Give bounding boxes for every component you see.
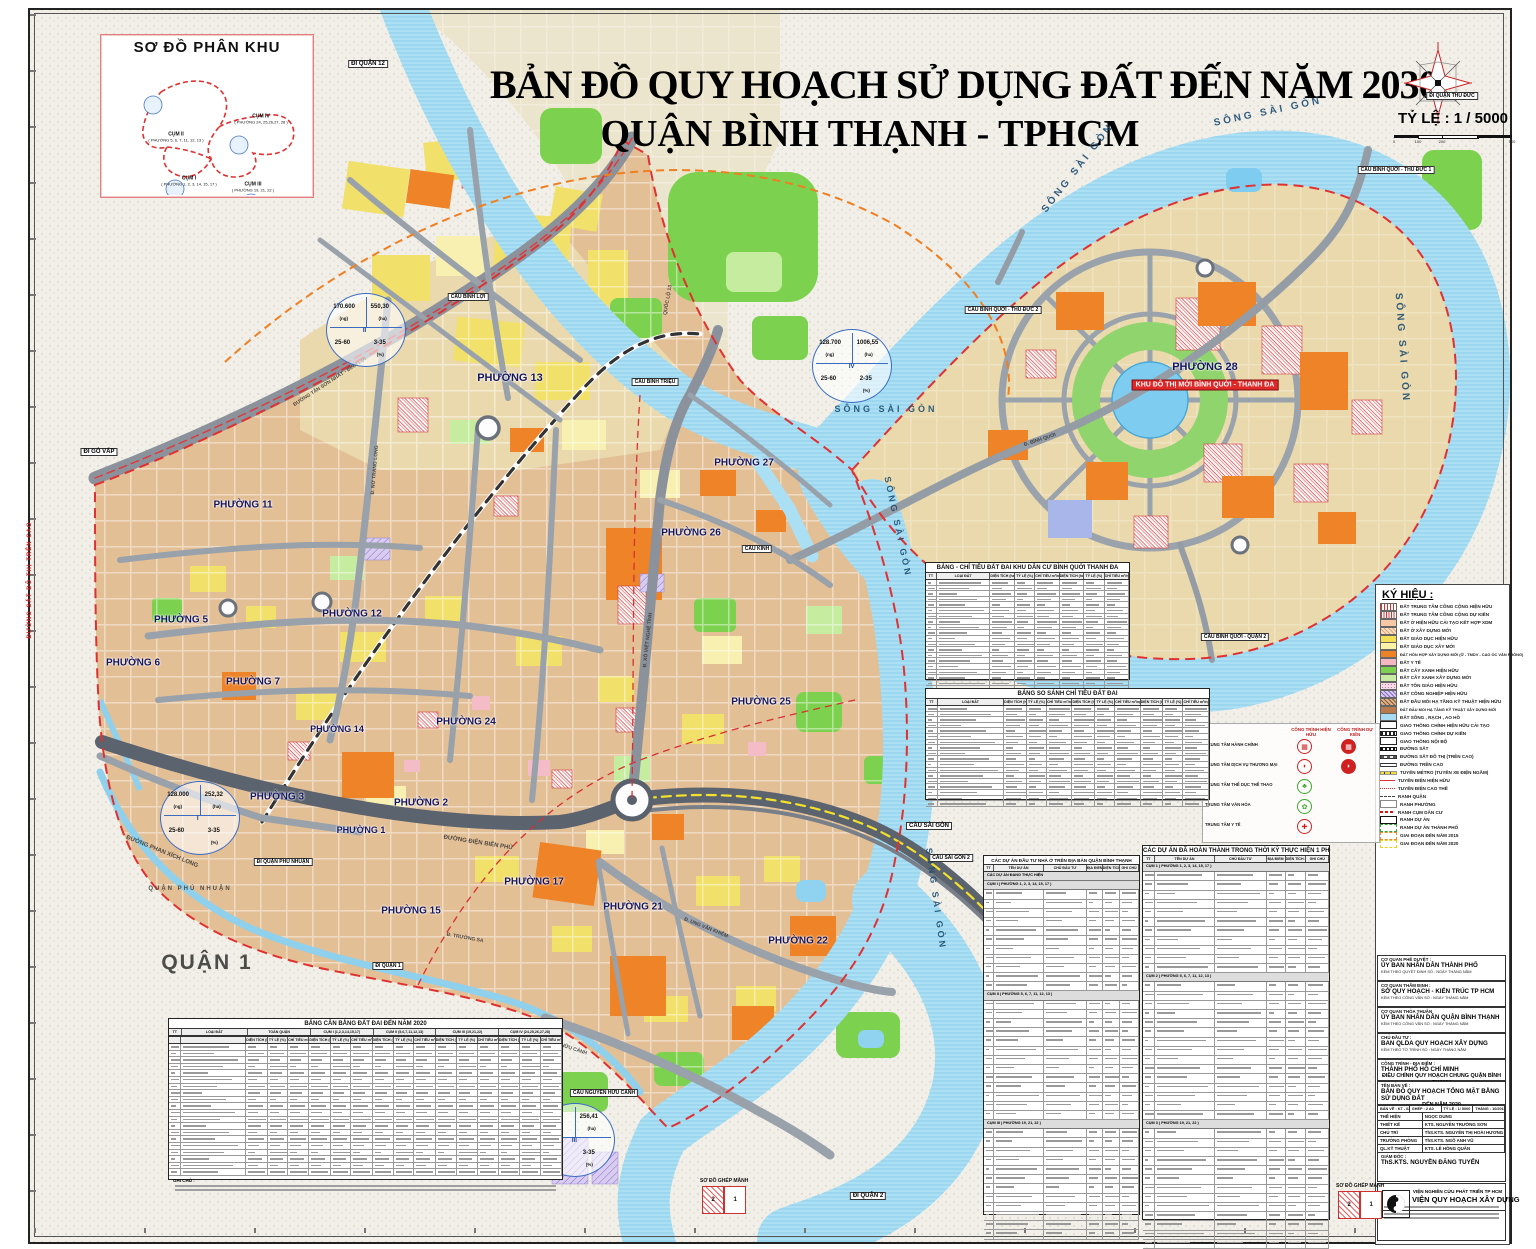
table-cell bbox=[457, 1090, 478, 1096]
table-cell bbox=[1044, 1047, 1087, 1055]
table-cell bbox=[938, 762, 1004, 767]
ward-label: PHƯỜNG 3 bbox=[250, 792, 304, 803]
table-cell bbox=[436, 1057, 457, 1063]
table-cell bbox=[1155, 1148, 1215, 1156]
table-cell bbox=[984, 1148, 994, 1156]
table-cell bbox=[1141, 712, 1164, 717]
table-cell bbox=[1286, 1166, 1307, 1174]
table-cell bbox=[1267, 1221, 1286, 1229]
table-header: TTTÊN DỰ ÁNCHỦ ĐẦU TƯĐỊA ĐIỂMDIỆN TÍCH (… bbox=[1143, 855, 1329, 863]
table-cell bbox=[478, 1057, 499, 1063]
table-header-cell: CHỈ TIÊU m²/người bbox=[1115, 699, 1140, 705]
table-cell bbox=[309, 1110, 330, 1116]
table-cell bbox=[394, 1143, 415, 1149]
table-row bbox=[984, 1083, 1139, 1092]
cluster-floors: 25-60 bbox=[335, 340, 350, 346]
cluster-area: 256,41 bbox=[580, 1114, 598, 1120]
approval-name: SỞ QUY HOẠCH - KIẾN TRÚC TP HCM bbox=[1381, 988, 1502, 995]
table-cell bbox=[1087, 1129, 1103, 1137]
table-cell bbox=[1087, 890, 1103, 898]
table-cell bbox=[1084, 647, 1105, 652]
table-cell bbox=[1087, 1047, 1103, 1055]
legend-swatch-icon bbox=[1380, 788, 1395, 789]
table-cell bbox=[984, 1056, 994, 1064]
table-cell bbox=[1103, 1184, 1120, 1192]
table-cell bbox=[288, 1136, 309, 1142]
table-cell bbox=[1267, 872, 1286, 880]
table-cell bbox=[1095, 762, 1115, 767]
table-cell bbox=[926, 745, 938, 750]
table-cell bbox=[984, 982, 994, 990]
table-cell bbox=[268, 1084, 289, 1090]
table-header-cell: CHỈ TIÊU m²/ng bbox=[541, 1037, 562, 1043]
bridge-label: ĐI QUẬN THỦ ĐỨC bbox=[1426, 92, 1478, 100]
table-cell bbox=[926, 681, 937, 686]
table-cell bbox=[990, 647, 1014, 652]
table-cell bbox=[1267, 1231, 1286, 1239]
table-cell bbox=[331, 1103, 352, 1109]
table-cell bbox=[1267, 1084, 1286, 1092]
table-row bbox=[1143, 937, 1329, 946]
table-cell bbox=[268, 1097, 289, 1103]
table-cell bbox=[331, 1064, 352, 1070]
table-cell bbox=[394, 1097, 415, 1103]
table-cell bbox=[1103, 1102, 1120, 1110]
table-cell bbox=[331, 1136, 352, 1142]
table-cell bbox=[351, 1097, 372, 1103]
cluster-index: III bbox=[572, 1138, 577, 1144]
table-cell bbox=[990, 614, 1014, 619]
legend-item-label: GIAO THÔNG NỘI BỘ bbox=[1400, 739, 1447, 744]
table-cell bbox=[1035, 670, 1059, 675]
table-group-cell: TOÀN QUẬN bbox=[248, 1029, 311, 1035]
table-cell bbox=[436, 1143, 457, 1149]
table-cell bbox=[1047, 723, 1072, 728]
table-cell bbox=[1115, 801, 1140, 806]
table-section-row: CÁC DỰ ÁN ĐANG THỰC HIỆN bbox=[984, 872, 1139, 881]
legend-swatch-icon bbox=[1380, 747, 1397, 751]
table-header-cell: DIỆN TÍCH (ha) bbox=[373, 1037, 394, 1043]
table-cell bbox=[1015, 681, 1036, 686]
works-existing-icon: ▦ bbox=[1297, 739, 1312, 754]
legend-swatch-icon bbox=[1380, 658, 1397, 666]
table-section-row: CỤM III ( PHƯỜNG 19, 21, 22 ) bbox=[984, 1120, 1139, 1129]
cluster-pop-unit: (ng) bbox=[825, 352, 834, 357]
table-row bbox=[984, 909, 1139, 918]
works-row: TRUNG TÂM DỊCH VỤ THƯƠNG MẠI◗◗ bbox=[1205, 758, 1377, 774]
table-cell bbox=[1267, 964, 1286, 972]
table-cell bbox=[1163, 706, 1183, 711]
table-header-cell: CHỈ TIÊU m²/người bbox=[1047, 699, 1072, 705]
table-cell bbox=[1286, 927, 1307, 935]
table-cell bbox=[1155, 1038, 1215, 1046]
table-cell bbox=[1103, 1175, 1120, 1183]
table-cell bbox=[541, 1130, 562, 1136]
table-cell bbox=[1060, 602, 1084, 607]
table-cell bbox=[1027, 790, 1047, 795]
legend-item: TUYẾN MÉTRO (TUYẾN XE ĐIỆN NGẦM) bbox=[1380, 769, 1509, 777]
table-cell bbox=[1087, 1037, 1103, 1045]
table-cell bbox=[1120, 909, 1139, 917]
road-label: ĐƯỜNG ĐIỆN BIÊN PHỦ bbox=[443, 835, 513, 852]
table-header-cell: DIỆN TÍCH (ha) bbox=[309, 1037, 330, 1043]
table-cell bbox=[1143, 1019, 1155, 1027]
table-row bbox=[1143, 1019, 1329, 1028]
table-row bbox=[984, 946, 1139, 955]
drawing-info-value: KTS. LÊ HỒNG QUÂN bbox=[1423, 1145, 1505, 1152]
table-cell bbox=[331, 1143, 352, 1149]
table-cell bbox=[1004, 784, 1027, 789]
table-cell bbox=[520, 1064, 541, 1070]
table-cell bbox=[1306, 881, 1329, 889]
table-cell bbox=[1015, 608, 1036, 613]
table-body bbox=[926, 706, 1209, 807]
table-cell bbox=[1115, 706, 1140, 711]
table-title: BẢNG - CHỈ TIÊU ĐẤT ĐAI KHU DÂN CƯ BÌNH … bbox=[926, 563, 1129, 572]
table-cell bbox=[1306, 1148, 1329, 1156]
table-cell bbox=[520, 1143, 541, 1149]
legend-item-label: RANH DỰ ÁN bbox=[1400, 817, 1430, 822]
data-table: BẢNG SO SÁNH CHỈ TIÊU ĐẤT ĐAITTLOẠI ĐẤTD… bbox=[925, 688, 1210, 800]
table-cell bbox=[990, 658, 1014, 663]
table-row bbox=[984, 1212, 1139, 1221]
table-cell bbox=[1215, 1065, 1266, 1073]
table-cell bbox=[1183, 790, 1208, 795]
table-cell bbox=[1084, 597, 1105, 602]
works-row: TRUNG TÂM THỂ DỤC THỂ THAO♣ bbox=[1205, 778, 1377, 794]
table-cell bbox=[994, 1129, 1044, 1137]
table-cell bbox=[1120, 1047, 1139, 1055]
table-cell bbox=[1155, 927, 1215, 935]
table-cell bbox=[1103, 1083, 1120, 1091]
legend-item: ĐẤT SÔNG , RẠCH , AO HỒ bbox=[1380, 713, 1509, 721]
table-cell bbox=[373, 1123, 394, 1129]
table-cell bbox=[1103, 1166, 1120, 1174]
sheet-index-tile: 2 bbox=[702, 1186, 724, 1214]
table-cell bbox=[1072, 717, 1095, 722]
table-cell bbox=[1286, 1194, 1307, 1202]
table-cell bbox=[288, 1163, 309, 1169]
table-cell bbox=[1035, 653, 1059, 658]
legend-swatch-icon bbox=[1380, 603, 1397, 611]
table-cell bbox=[1044, 1028, 1087, 1036]
table-header-cell: DIỆN TÍCH (ha) bbox=[246, 1037, 267, 1043]
table-cell bbox=[373, 1090, 394, 1096]
table-cell bbox=[1072, 790, 1095, 795]
table-cell bbox=[394, 1150, 415, 1156]
table-cell bbox=[351, 1150, 372, 1156]
bridge-label: ĐI GÒ VẤP bbox=[80, 448, 117, 456]
table-cell bbox=[1087, 1157, 1103, 1165]
table-cell bbox=[1141, 723, 1164, 728]
table-cell bbox=[1155, 946, 1215, 954]
works-planned-icon: ▦ bbox=[1341, 739, 1356, 754]
table-cell bbox=[394, 1070, 415, 1076]
table-cell bbox=[1072, 801, 1095, 806]
table-cell bbox=[1027, 784, 1047, 789]
table-cell bbox=[268, 1057, 289, 1063]
table-cell bbox=[1163, 784, 1183, 789]
table-cell bbox=[246, 1156, 267, 1162]
cluster-density-unit: (%) bbox=[377, 352, 384, 357]
table-row bbox=[1143, 982, 1329, 991]
table-cell bbox=[1087, 1019, 1103, 1027]
table-cell bbox=[478, 1051, 499, 1057]
table-cell bbox=[268, 1110, 289, 1116]
table-cell bbox=[1015, 642, 1036, 647]
table-header-cell: CHỈ TIÊU m²/ng bbox=[351, 1037, 372, 1043]
table-cell bbox=[1143, 1047, 1155, 1055]
table-cell bbox=[1060, 636, 1084, 641]
table-row bbox=[984, 973, 1139, 982]
table-cell bbox=[457, 1057, 478, 1063]
table-cell bbox=[926, 706, 938, 711]
drawing-info-key: CHỦ TRÌ bbox=[1378, 1129, 1423, 1136]
table-row bbox=[926, 801, 1209, 807]
road-label: Đ. NƠ TRANG LONG bbox=[370, 445, 380, 495]
table-cell bbox=[1155, 992, 1215, 1000]
table-cell bbox=[994, 1028, 1044, 1036]
table-cell bbox=[541, 1057, 562, 1063]
table-cell bbox=[1060, 658, 1084, 663]
table-cell bbox=[1035, 625, 1059, 630]
table-cell bbox=[436, 1156, 457, 1162]
road-label: Đ. UNG VĂN KHIÊM bbox=[683, 916, 729, 939]
table-cell bbox=[1155, 1102, 1215, 1110]
legend-item: ĐẤT Y TẾ bbox=[1380, 658, 1509, 666]
table-cell bbox=[331, 1057, 352, 1063]
table-cell bbox=[1306, 1221, 1329, 1229]
table-cell bbox=[1027, 740, 1047, 745]
table-cell bbox=[1183, 762, 1208, 767]
cluster-density: 3-35 bbox=[374, 340, 386, 346]
table-cell bbox=[1103, 1047, 1120, 1055]
table-cell bbox=[1143, 1065, 1155, 1073]
table-cell bbox=[1163, 768, 1183, 773]
table-cell bbox=[1215, 1157, 1266, 1165]
table-cell bbox=[1103, 936, 1120, 944]
table-cell bbox=[990, 642, 1014, 647]
cluster-population: 128.700 bbox=[819, 340, 841, 346]
table-cell bbox=[1215, 1093, 1266, 1101]
table-cell bbox=[1306, 1129, 1329, 1137]
table-cell bbox=[1060, 642, 1084, 647]
bridge-label: CẦU NGUYỄN HỮU CẢNH bbox=[570, 1089, 638, 1097]
table-cell bbox=[1120, 1148, 1139, 1156]
table-cell bbox=[1163, 790, 1183, 795]
table-cell bbox=[1120, 1129, 1139, 1137]
table-cell bbox=[373, 1070, 394, 1076]
ward-label: PHƯỜNG 6 bbox=[106, 658, 160, 669]
sheet-index-tile: 1 bbox=[1360, 1191, 1382, 1219]
table-cell bbox=[499, 1090, 520, 1096]
table-cell bbox=[1267, 881, 1286, 889]
table-row bbox=[984, 1111, 1139, 1120]
table-cell bbox=[926, 602, 937, 607]
table-cell bbox=[1163, 712, 1183, 717]
table-cell bbox=[1306, 964, 1329, 972]
table-cell bbox=[246, 1110, 267, 1116]
table-cell bbox=[1047, 740, 1072, 745]
table-cell bbox=[938, 751, 1004, 756]
legend-swatch-icon bbox=[1380, 840, 1397, 848]
sheet-index-tiles: 21 bbox=[700, 1186, 748, 1214]
table-cell bbox=[288, 1117, 309, 1123]
table-cell bbox=[984, 1019, 994, 1027]
table-row bbox=[169, 1084, 562, 1091]
table-row bbox=[984, 982, 1139, 991]
table-cell bbox=[1143, 1001, 1155, 1009]
table-cell bbox=[994, 1037, 1044, 1045]
table-row bbox=[169, 1143, 562, 1150]
table-cell bbox=[1155, 1093, 1215, 1101]
table-cell bbox=[351, 1051, 372, 1057]
table-cell bbox=[1103, 1230, 1120, 1238]
table-cell bbox=[990, 602, 1014, 607]
sheet-index-diagram: SƠ ĐỒ GHÉP MẢNH21 bbox=[700, 1178, 748, 1214]
table-cell bbox=[1286, 1139, 1307, 1147]
legend-swatch-icon bbox=[1380, 619, 1397, 627]
table-cell bbox=[1286, 1221, 1307, 1229]
table-cell bbox=[414, 1077, 435, 1083]
works-row: TRUNG TÂM VĂN HÓA✿ bbox=[1205, 798, 1377, 814]
table-cell bbox=[1027, 773, 1047, 778]
table-cell bbox=[478, 1156, 499, 1162]
table-row bbox=[984, 1184, 1139, 1193]
table-cell bbox=[984, 1065, 994, 1073]
table-cell bbox=[414, 1150, 435, 1156]
table-row bbox=[1143, 1175, 1329, 1184]
table-cell bbox=[1286, 1148, 1307, 1156]
table-cell bbox=[1120, 1111, 1139, 1119]
table-cell bbox=[457, 1084, 478, 1090]
table-cell bbox=[1267, 1047, 1286, 1055]
table-cell bbox=[1215, 964, 1266, 972]
table-cell bbox=[520, 1051, 541, 1057]
table-cell bbox=[309, 1064, 330, 1070]
table-cell bbox=[926, 664, 937, 669]
table-cell bbox=[1084, 580, 1105, 585]
table-cell bbox=[984, 955, 994, 963]
drawing-info-key: QL.KỸ THUẬT bbox=[1378, 1145, 1423, 1152]
table-cell bbox=[394, 1077, 415, 1083]
table-cell bbox=[1183, 779, 1208, 784]
table-cell bbox=[1044, 946, 1087, 954]
table-cell bbox=[457, 1156, 478, 1162]
table-cell bbox=[246, 1051, 267, 1057]
table-cell bbox=[499, 1136, 520, 1142]
legend-swatch-icon bbox=[1380, 611, 1397, 619]
table-cell bbox=[984, 1028, 994, 1036]
approval-name: BAN QLDA QUY HOẠCH XÂY DỰNG bbox=[1381, 1040, 1502, 1047]
table-body bbox=[926, 580, 1129, 692]
table-cell bbox=[1267, 1001, 1286, 1009]
table-cell bbox=[984, 1037, 994, 1045]
table-cell bbox=[1072, 773, 1095, 778]
table-cell bbox=[499, 1123, 520, 1129]
table-title: CÁC DỰ ÁN ĐÃ HOÀN THÀNH TRONG THỜI KỲ TH… bbox=[1143, 846, 1329, 855]
table-cell bbox=[1267, 1093, 1286, 1101]
table-row bbox=[984, 936, 1139, 945]
table-cell bbox=[994, 982, 1044, 990]
table-cell bbox=[288, 1103, 309, 1109]
table-cell bbox=[414, 1084, 435, 1090]
table-cell bbox=[1047, 751, 1072, 756]
table-cell bbox=[1306, 1157, 1329, 1165]
table-cell bbox=[1115, 717, 1140, 722]
table-row bbox=[984, 1019, 1139, 1028]
table-cell bbox=[309, 1070, 330, 1076]
table-cell bbox=[1047, 745, 1072, 750]
table-cell bbox=[1155, 1084, 1215, 1092]
table-cell bbox=[984, 1093, 994, 1101]
table-cell bbox=[1267, 1157, 1286, 1165]
table-cell bbox=[1103, 890, 1120, 898]
works-col-planned: CÔNG TRÌNH DỰ KIẾN bbox=[1333, 727, 1377, 737]
table-cell bbox=[351, 1077, 372, 1083]
table-group-cell: CỤM IV (24,25,26,27,28) bbox=[499, 1029, 562, 1035]
table-cell bbox=[926, 591, 937, 596]
table-cell bbox=[1095, 745, 1115, 750]
table-cell bbox=[1120, 1102, 1139, 1110]
table-cell bbox=[1087, 964, 1103, 972]
table-cell bbox=[1027, 751, 1047, 756]
table-cell bbox=[994, 1056, 1044, 1064]
table-cell bbox=[1155, 1129, 1215, 1137]
table-cell bbox=[309, 1097, 330, 1103]
table-cell bbox=[181, 1110, 246, 1116]
table-cell bbox=[288, 1057, 309, 1063]
table-cell bbox=[1035, 658, 1059, 663]
table-cell bbox=[1183, 728, 1208, 733]
cluster-area-unit: (ha) bbox=[212, 804, 220, 809]
table-cell bbox=[1306, 946, 1329, 954]
table-cell bbox=[1120, 1221, 1139, 1229]
table-cell bbox=[1141, 728, 1164, 733]
table-cell bbox=[1143, 1028, 1155, 1036]
table-cell bbox=[1155, 1001, 1215, 1009]
table-cell bbox=[1215, 900, 1266, 908]
table-cell bbox=[288, 1090, 309, 1096]
table-cell bbox=[1084, 653, 1105, 658]
table-cell bbox=[1155, 1065, 1215, 1073]
table-cell bbox=[1306, 927, 1329, 935]
table-cell bbox=[1286, 872, 1307, 880]
table-cell bbox=[990, 664, 1014, 669]
table-cell bbox=[1286, 955, 1307, 963]
table-cell bbox=[926, 630, 937, 635]
table-cell bbox=[1103, 1093, 1120, 1101]
table-header-cell: DIỆN TÍCH (ha) bbox=[499, 1037, 520, 1043]
table-cell bbox=[1141, 796, 1164, 801]
table-cell bbox=[1306, 1038, 1329, 1046]
table-cell bbox=[268, 1163, 289, 1169]
legend-item-label: TUYẾN ĐIỆN HIỆN HỮU bbox=[1398, 778, 1450, 783]
table-section-row: CỤM 1 ( PHƯỜNG 1, 2, 3, 14, 15, 17 ) bbox=[1143, 863, 1329, 872]
table-cell bbox=[1047, 712, 1072, 717]
table-cell bbox=[288, 1064, 309, 1070]
table-cell bbox=[520, 1097, 541, 1103]
table-cell bbox=[1183, 801, 1208, 806]
legend-item: ĐẤT ĐẦU MỐI HẠ TẦNG KỸ THUẬT XÂY DỰNG MỚ… bbox=[1380, 706, 1509, 714]
table-cell bbox=[499, 1169, 520, 1175]
table-cell bbox=[937, 602, 991, 607]
table-cell bbox=[373, 1169, 394, 1175]
table-cell bbox=[499, 1163, 520, 1169]
table-cell bbox=[1084, 602, 1105, 607]
table-header-cell: TỶ LỆ (%) bbox=[394, 1037, 415, 1043]
table-cell bbox=[937, 580, 991, 585]
